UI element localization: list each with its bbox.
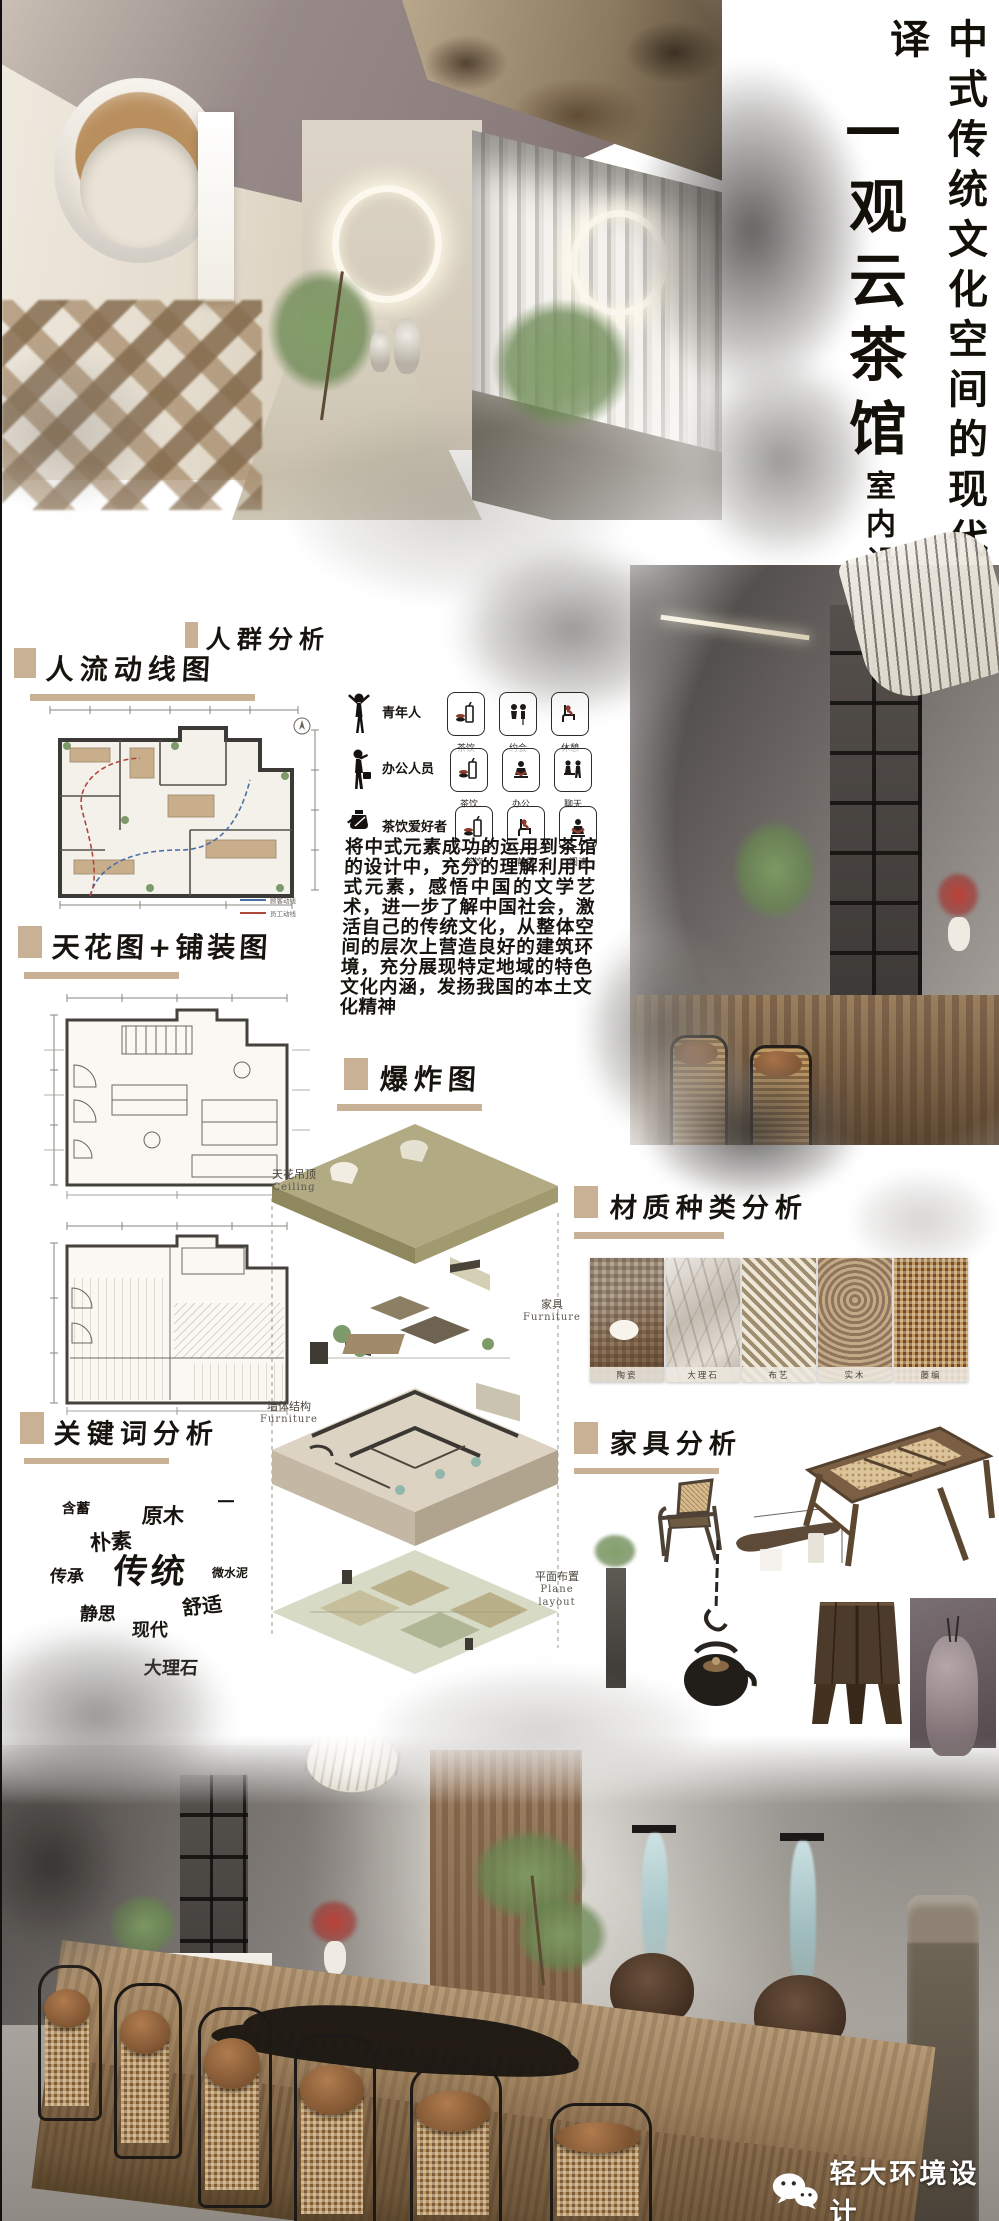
flow-legend: 顾客动线 员工动线: [240, 895, 296, 918]
section-title-keywords: 关键词分析: [53, 1412, 220, 1451]
rattan-bar-stool: [114, 1983, 176, 2153]
keyword: 微水泥: [211, 1564, 248, 1581]
waterfall-spout: [780, 1833, 824, 1841]
keyword: 舒适: [181, 1588, 224, 1621]
material-label: 藤编: [894, 1367, 968, 1382]
hanging-scroll: [198, 112, 234, 302]
keyword: 原木: [141, 1500, 185, 1530]
keyword-primary: 传统: [112, 1544, 189, 1593]
explode-label-ceiling: 天花吊顶Ceiling: [264, 1168, 324, 1194]
crowd-group-youth: 青年人 茶饮 约会 休憩: [346, 692, 593, 754]
waterfall-stream: [790, 1841, 816, 1991]
top-render-teahouse-corridor: [2, 0, 722, 520]
explode-layer-ceiling: [272, 1124, 558, 1291]
keyword: 传承: [49, 1562, 85, 1587]
section-underline: [24, 1458, 169, 1464]
wooden-benches: [2, 300, 262, 510]
material-label: 布艺: [742, 1367, 816, 1382]
pine-tree-canopy: [502, 1885, 622, 1985]
concept-paragraph: 将中式元素成功的运用到茶馆的设计中，充分的理解利用中式元素，感悟中国的文学艺术，…: [339, 838, 598, 1028]
tea-drink-icon: [447, 692, 485, 736]
material-tile-wood: 实木: [818, 1258, 892, 1382]
legend-line-customer: [240, 899, 266, 901]
section-underline: [574, 1232, 724, 1239]
crowd-group-name: 青年人: [382, 702, 421, 721]
material-label: 实木: [818, 1367, 892, 1382]
resting-seat-icon: [551, 692, 589, 736]
flow-plan-drawing: [30, 700, 330, 910]
dating-couple-icon: [499, 692, 537, 736]
waterfall-spout: [632, 1825, 676, 1833]
section-underline: [24, 972, 179, 979]
section-title-explode: 爆炸图: [379, 1058, 483, 1098]
wechat-icon: [770, 2171, 820, 2211]
material-tile-fabric: 布艺: [742, 1258, 816, 1382]
brand-logo: 轻大环境设计: [770, 2152, 999, 2221]
vase: [370, 330, 390, 372]
material-label: 大理石: [666, 1367, 740, 1382]
working-desk-icon: [502, 748, 540, 792]
furniture-hanging-teapot: [670, 1540, 760, 1740]
crowd-group-name: 茶饮爱好者: [382, 816, 447, 835]
keyword: 含蓄: [61, 1498, 90, 1518]
rattan-bar-stool: [38, 1965, 96, 2115]
red-flower-arrangement: [930, 865, 986, 925]
section-mark-square: [18, 926, 42, 958]
rattan-bar-stool: [410, 2065, 496, 2221]
bamboo-plant-2: [472, 280, 652, 450]
explode-label-walls: 墙体结构Furniture: [257, 1400, 321, 1426]
furniture-wood-stool: [802, 1588, 912, 1728]
furniture-rattan-bench: [790, 1418, 999, 1583]
rattan-bar-stool: [294, 2035, 370, 2221]
crowd-group-name: 办公人员: [382, 758, 434, 777]
section-title-furniture: 家具分析: [609, 1422, 743, 1461]
section-underline: [337, 1104, 482, 1111]
material-tile-ceramic: 陶瓷: [590, 1258, 664, 1382]
section-mark-square: [20, 1412, 44, 1444]
bottom-render-tea-bar-hall: [2, 1735, 999, 2221]
legend-label: 顾客动线: [270, 895, 296, 905]
section-title-materials: 材质种类分析: [609, 1186, 809, 1225]
white-vase: [948, 917, 970, 951]
white-vase: [324, 1941, 346, 1975]
waterfall-stream: [642, 1833, 668, 1968]
bar-stool-seat: [754, 1051, 802, 1077]
explode-label-plan: 平面布置Plane layout: [522, 1570, 592, 1609]
bar-stool-seat: [674, 1041, 718, 1065]
bamboo-plant: [252, 250, 392, 410]
crowd-group-office: 办公人员 茶饮 办公 聊天: [346, 748, 596, 810]
section-title-ceilpave: 天花图+铺装图: [51, 926, 273, 966]
fern-plant: [720, 805, 830, 935]
material-tile-marble: 大理石: [666, 1258, 740, 1382]
furniture-bonsai-pedestal: [584, 1528, 644, 1693]
stone-pedestal: [606, 1568, 626, 1688]
section-mark-square: [14, 648, 36, 678]
keyword-cloud: 含蓄 原木 — 朴素 传承 传统 微水泥 静思 舒适 现代 大理石: [32, 1482, 282, 1697]
section-mark-square: [574, 1422, 598, 1454]
keyword: —: [216, 1490, 235, 1511]
explode-layer-plan: [272, 1550, 558, 1674]
section-mark-bar: [185, 622, 198, 648]
vase-2: [394, 318, 420, 374]
poster-canvas: 中式传统文化空间的现代转译 —观云茶馆 室内设计 人流动线图: [0, 0, 999, 2221]
material-label: 陶瓷: [590, 1367, 664, 1382]
legend-label: 员工动线: [270, 908, 296, 918]
chatting-pair-icon: [554, 748, 592, 792]
keyword: 大理石: [143, 1654, 199, 1680]
keyword: 静思: [79, 1600, 117, 1626]
section-underline: [574, 1468, 719, 1474]
section-title-flow: 人流动线图: [45, 648, 217, 688]
brand-name: 轻大环境设计: [830, 2152, 999, 2221]
poster-title-house: —观云茶馆: [831, 92, 915, 512]
section-mark-square: [574, 1186, 598, 1218]
material-tile-rattan: 藤编: [894, 1258, 968, 1382]
tea-drink-icon: [450, 748, 488, 792]
person-arms-up-icon: [346, 692, 372, 736]
rattan-bar-stool: [550, 2103, 646, 2221]
section-mark-square: [344, 1058, 368, 1090]
section-title-crowd: 人群分析: [205, 620, 331, 656]
explode-label-furniture: 家具Furniture: [522, 1298, 582, 1324]
office-worker-icon: [346, 748, 372, 792]
rattan-bar-stool: [198, 2007, 266, 2202]
legend-line-staff: [240, 912, 266, 914]
keyword: 现代: [131, 1616, 169, 1642]
moon-niche-inner: [80, 128, 200, 248]
